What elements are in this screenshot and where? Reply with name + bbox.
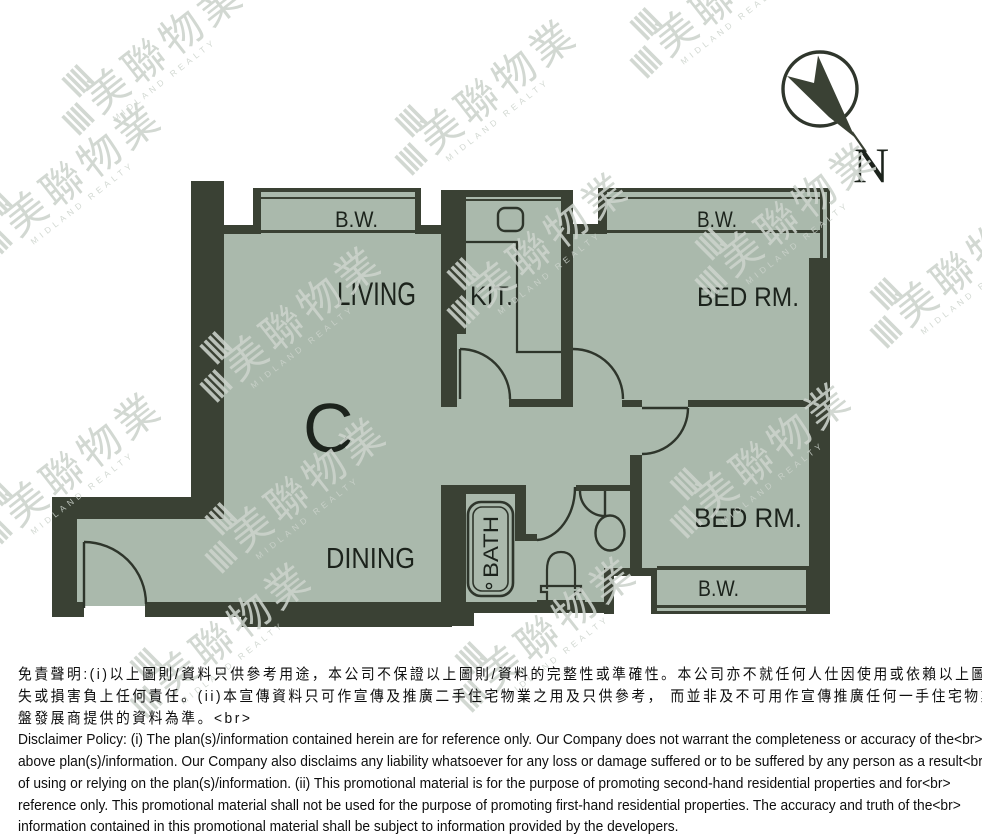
svg-text:DINING: DINING xyxy=(326,543,415,575)
svg-text:B.W.: B.W. xyxy=(335,207,378,232)
svg-text:B.W.: B.W. xyxy=(697,207,737,232)
svg-text:B.W.: B.W. xyxy=(698,576,739,601)
svg-text:BATH: BATH xyxy=(480,516,503,578)
